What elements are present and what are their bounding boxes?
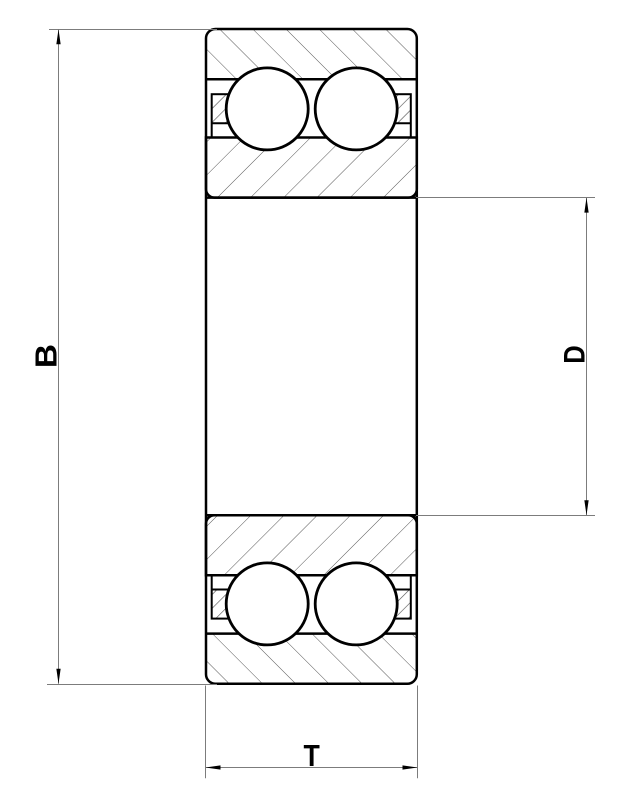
svg-text:B: B: [29, 344, 64, 368]
svg-text:T: T: [303, 739, 320, 773]
svg-text:D: D: [557, 345, 590, 363]
